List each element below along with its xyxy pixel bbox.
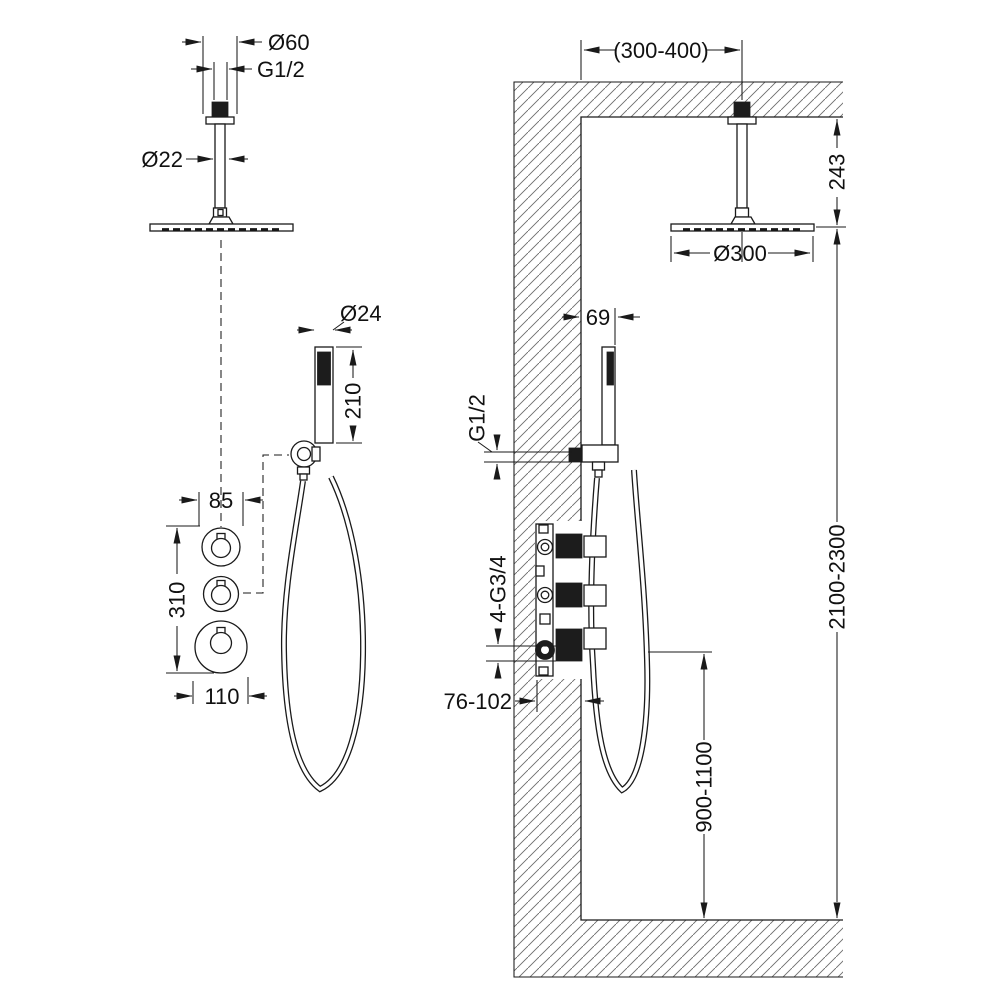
dim-label-arm-diameter: Ø22: [141, 147, 183, 172]
valve-cartridge-3: [556, 629, 582, 661]
arm-union-nut: [736, 208, 749, 217]
dim-label-upper-escutcheon: 85: [209, 488, 233, 513]
valve-handle-1: [584, 536, 606, 557]
wand-spray-band: [607, 352, 614, 385]
dim-label-valve-height: 900-1100: [692, 741, 717, 832]
head-cone: [209, 217, 233, 224]
valve-fitting-small-2: [540, 614, 550, 624]
ceiling-connector: [734, 102, 750, 117]
valve-handle-2: [584, 585, 606, 606]
dim-valve-height: 900-1100: [648, 652, 717, 918]
dim-label-lower-escutcheon: 110: [204, 684, 239, 709]
connection-dashed-line: [243, 455, 289, 593]
valve-trim-left: [195, 528, 247, 673]
dim-label-head-offset: (300-400): [613, 38, 708, 63]
dim-lower-escutcheon: 110: [174, 677, 267, 709]
dim-label-head-diameter-right: Ø300: [713, 241, 767, 266]
dim-label-handle-diameter: Ø24: [340, 301, 382, 326]
dim-label-rough-in-depth: 76-102: [443, 689, 512, 714]
valve-top-tab: [539, 525, 548, 533]
wall-supply-elbow: [569, 448, 582, 462]
dim-arm-drop: 243: [816, 119, 850, 227]
dim-label-hand-shower-offset: 69: [586, 305, 610, 330]
dim-arm-diameter: Ø22: [141, 147, 248, 172]
dim-label-ceiling-thread: G1/2: [257, 57, 305, 82]
hose-nut: [593, 462, 605, 470]
dim-label-head-height: 2100-2300: [825, 524, 850, 629]
holder-link: [312, 447, 320, 461]
wall-holder-bracket: [582, 445, 618, 462]
dim-ceiling-thread: G1/2: [191, 57, 305, 100]
valve-cartridge-2: [556, 583, 582, 607]
shower-installation-diagram: (300-400) 243 2100-2300: [0, 0, 1000, 1000]
ceiling-flange: [728, 117, 756, 124]
dim-head-height: 2100-2300: [825, 229, 850, 918]
dim-label-trim-height: 310: [165, 582, 190, 619]
dim-label-handle-length: 210: [341, 383, 366, 420]
wand-spray-band: [318, 352, 331, 385]
dim-label-outlet-thread: G1/2: [465, 394, 490, 442]
hose-nut-lower: [300, 474, 307, 480]
valve-fitting-small: [536, 566, 544, 576]
valve-handle-3: [584, 628, 606, 649]
valve-cartridge-1: [556, 534, 582, 558]
dim-label-arm-drop: 243: [825, 154, 850, 191]
valve-bottom-tab: [539, 667, 548, 675]
dim-head-diameter-right: Ø300: [671, 232, 813, 266]
head-cone: [731, 217, 755, 224]
left-view: Ø60 G1/2 Ø22: [141, 30, 381, 789]
dim-handle-diameter: Ø24: [297, 301, 382, 330]
shower-arm-tube: [215, 124, 225, 208]
shower-arm-tube: [737, 124, 747, 208]
dim-label-flange-diameter: Ø60: [268, 30, 310, 55]
ceiling-flange: [206, 117, 234, 124]
dim-label-valve-connections: 4-G3/4: [486, 555, 511, 622]
dim-handle-length: 210: [336, 347, 366, 443]
hose-nut: [298, 467, 310, 474]
technical-drawing-page: (300-400) 243 2100-2300: [0, 0, 1000, 1000]
ceiling-connector: [212, 102, 228, 117]
ceiling-shower-arm-right: [671, 102, 814, 231]
right-view: (300-400) 243 2100-2300: [443, 38, 849, 977]
hose-nut-lower: [595, 470, 602, 477]
